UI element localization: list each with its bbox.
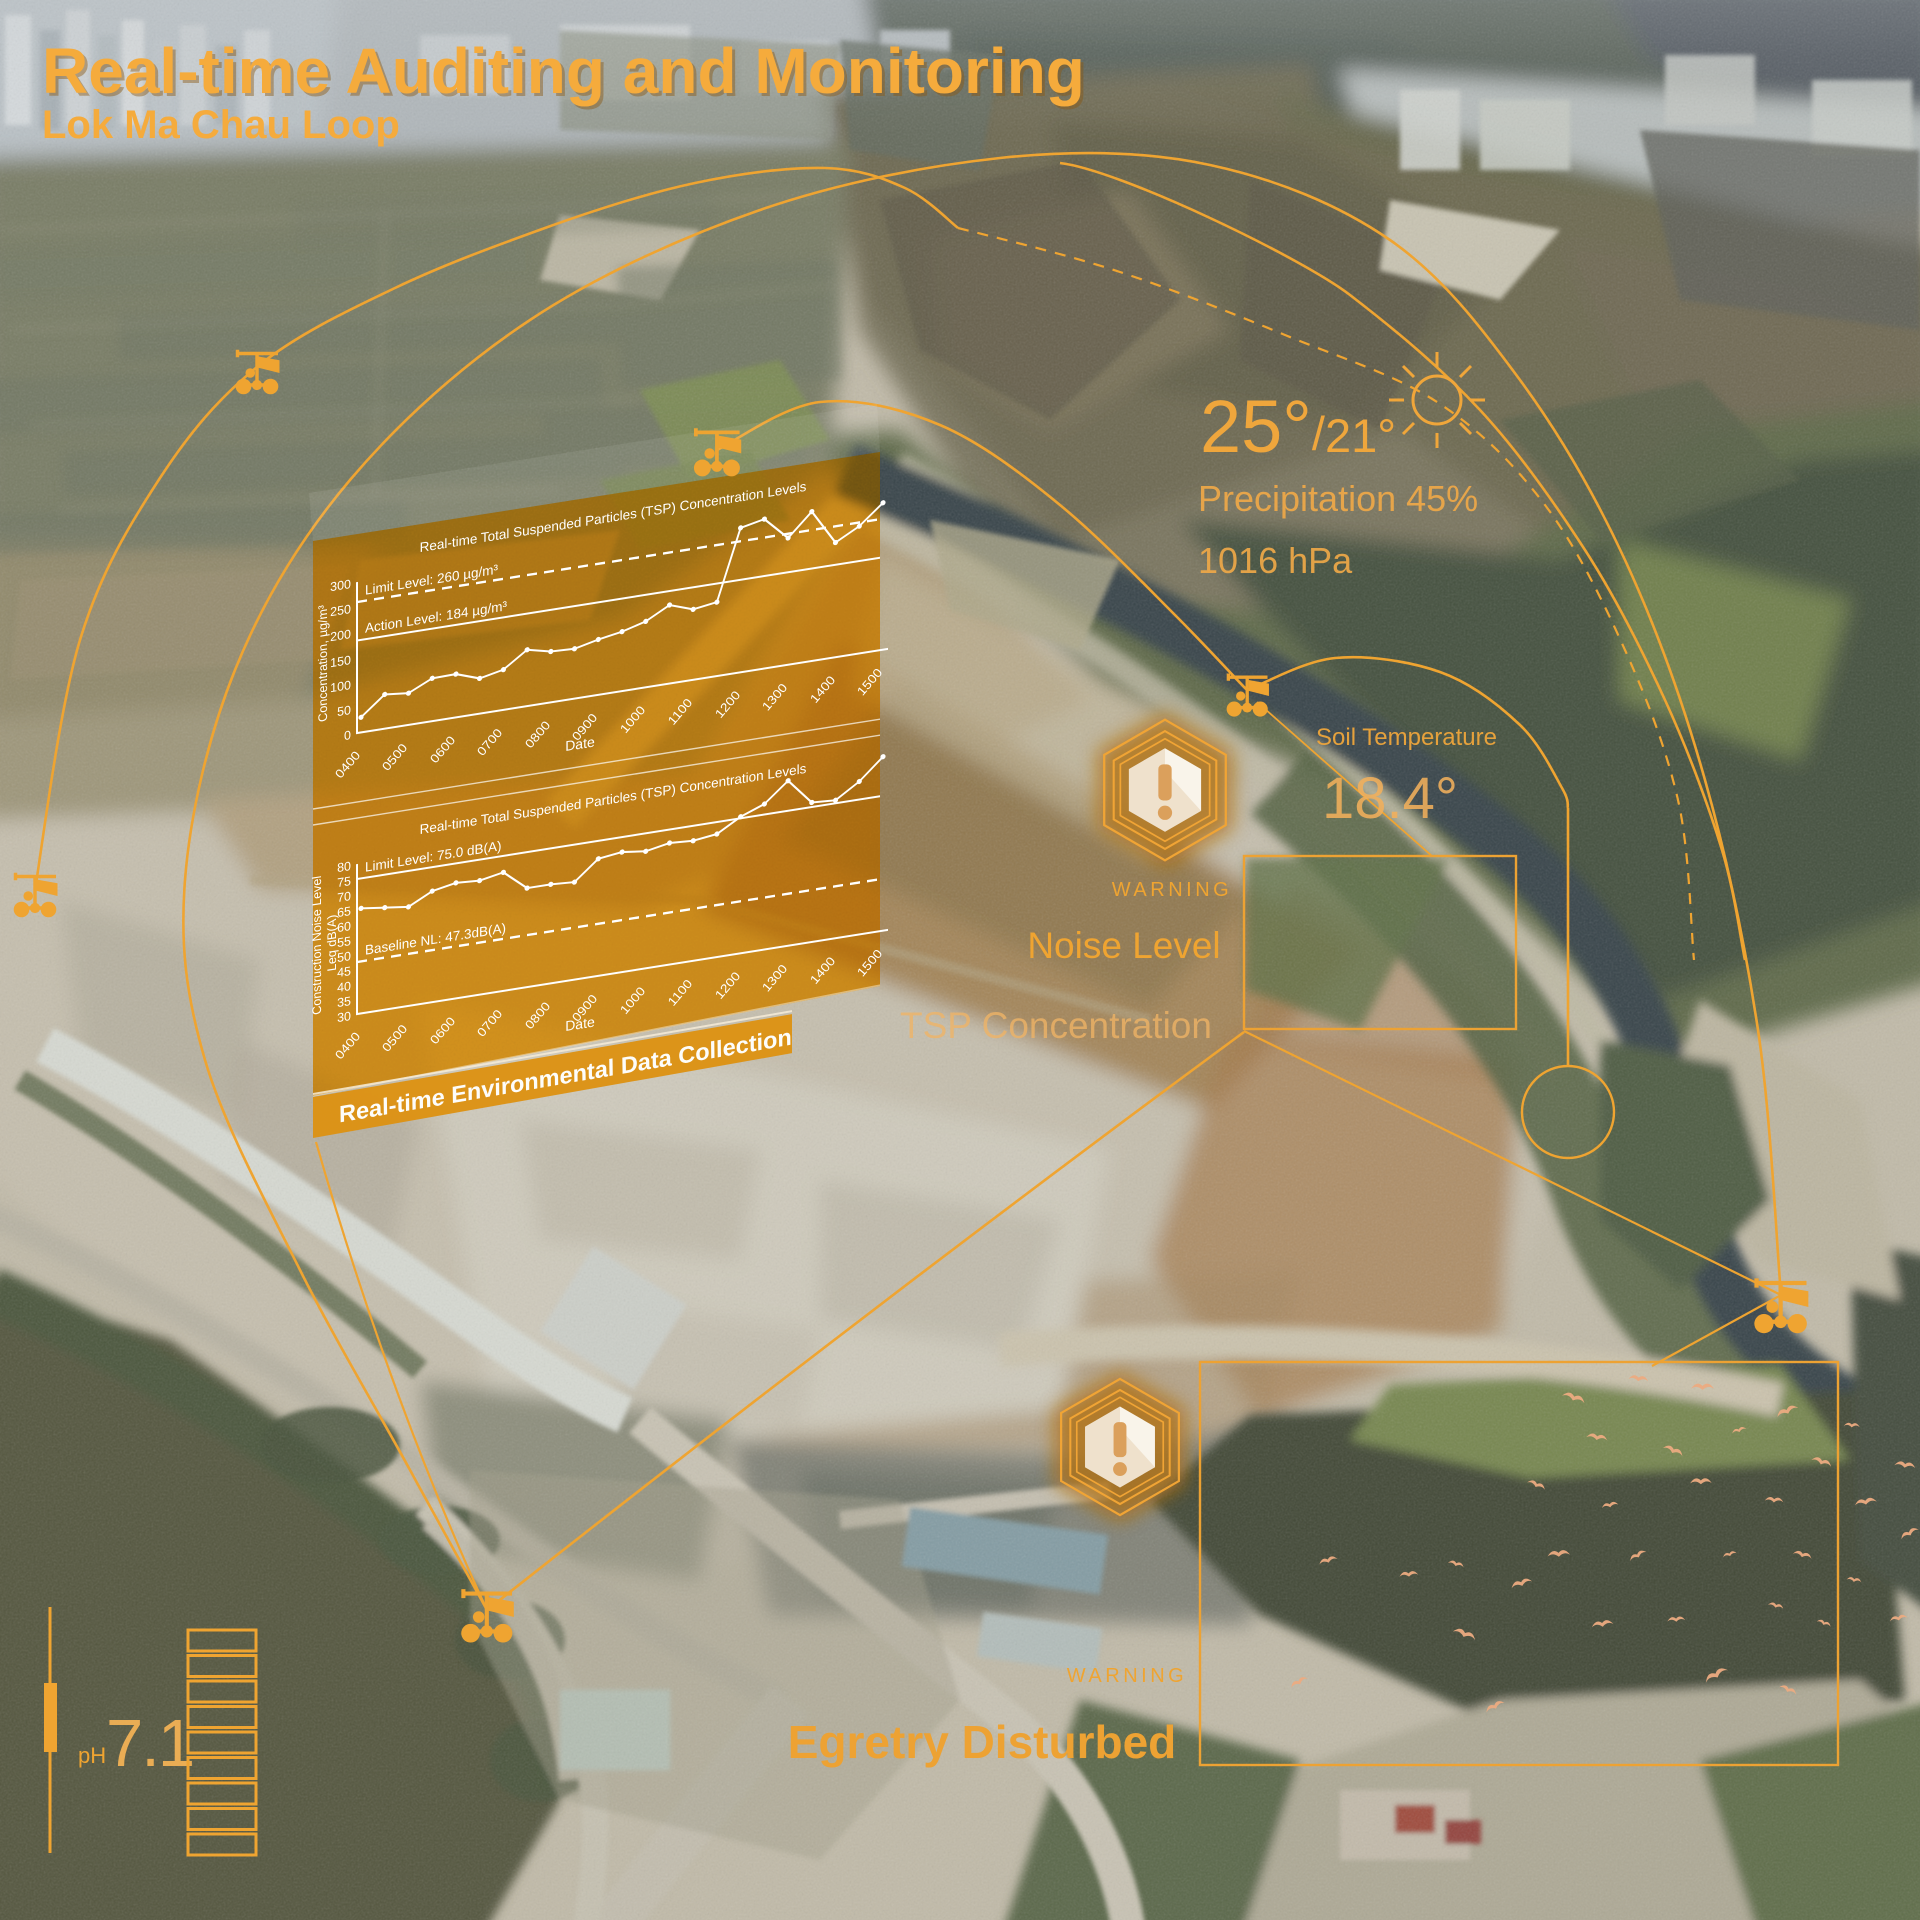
- svg-text:1000: 1000: [617, 703, 648, 736]
- svg-text:45: 45: [337, 964, 351, 980]
- svg-text:1200: 1200: [712, 969, 743, 1002]
- svg-text:7.1: 7.1: [106, 1706, 193, 1781]
- svg-text:Concentration, µg/m³: Concentration, µg/m³: [316, 604, 330, 723]
- svg-text:0500: 0500: [379, 741, 410, 774]
- svg-text:25°/21°: 25°/21°: [1200, 385, 1396, 468]
- svg-text:75: 75: [337, 874, 351, 890]
- svg-text:55: 55: [337, 934, 351, 950]
- svg-text:0500: 0500: [379, 1022, 410, 1055]
- svg-text:pH: pH: [78, 1743, 106, 1768]
- svg-text:Limit Level: 260 µg/m³: Limit Level: 260 µg/m³: [365, 562, 498, 598]
- svg-text:250: 250: [330, 602, 351, 619]
- svg-text:1400: 1400: [807, 673, 838, 706]
- svg-text:TSP Concentration: TSP Concentration: [900, 1005, 1212, 1046]
- svg-text:0600: 0600: [427, 733, 458, 766]
- svg-text:Precipitation 45%: Precipitation 45%: [1198, 478, 1478, 519]
- svg-text:1300: 1300: [759, 962, 790, 995]
- svg-text:100: 100: [330, 678, 351, 695]
- svg-text:0: 0: [344, 728, 351, 743]
- svg-text:1500: 1500: [854, 666, 885, 699]
- svg-text:Date: Date: [565, 1013, 595, 1034]
- svg-text:Real-time Environmental Data C: Real-time Environmental Data Collection: [339, 1025, 792, 1129]
- svg-text:65: 65: [337, 904, 351, 920]
- svg-text:Date: Date: [565, 733, 595, 754]
- svg-text:0800: 0800: [522, 999, 553, 1032]
- svg-text:0400: 0400: [332, 748, 363, 781]
- svg-text:60: 60: [337, 919, 351, 935]
- svg-text:1016 hPa: 1016 hPa: [1198, 540, 1353, 581]
- svg-text:50: 50: [337, 949, 351, 965]
- svg-text:WARNING: WARNING: [1112, 879, 1232, 901]
- svg-text:150: 150: [330, 653, 351, 670]
- svg-text:Construction Noise LevelLeq dB: Construction Noise LevelLeq dB(A): [310, 872, 339, 1015]
- svg-text:Lok Ma Chau Loop: Lok Ma Chau Loop: [42, 103, 400, 147]
- svg-text:0400: 0400: [332, 1029, 363, 1062]
- svg-text:35: 35: [337, 994, 351, 1010]
- svg-text:70: 70: [337, 889, 351, 905]
- svg-text:1100: 1100: [665, 696, 695, 728]
- svg-text:1100: 1100: [665, 977, 695, 1009]
- svg-text:Egretry Disturbed: Egretry Disturbed: [788, 1716, 1177, 1768]
- svg-text:Baseline NL: 47.3dB(A): Baseline NL: 47.3dB(A): [365, 921, 506, 958]
- svg-text:1000: 1000: [617, 984, 648, 1017]
- svg-text:1500: 1500: [854, 947, 885, 980]
- svg-text:50: 50: [337, 703, 351, 719]
- svg-text:40: 40: [337, 979, 351, 995]
- svg-text:Limit Level: 75.0 dB(A): Limit Level: 75.0 dB(A): [365, 838, 502, 875]
- svg-text:WARNING: WARNING: [1067, 1665, 1187, 1687]
- svg-text:0600: 0600: [427, 1014, 458, 1047]
- svg-text:Real-time Auditing and Monitor: Real-time Auditing and Monitoring: [42, 35, 1085, 107]
- svg-text:0700: 0700: [474, 1007, 505, 1040]
- svg-text:1300: 1300: [759, 681, 790, 714]
- svg-text:200: 200: [330, 627, 351, 644]
- svg-text:300: 300: [330, 577, 351, 594]
- svg-text:18.4°: 18.4°: [1322, 766, 1458, 831]
- svg-text:0800: 0800: [522, 718, 553, 751]
- svg-text:Soil Temperature: Soil Temperature: [1316, 724, 1497, 751]
- svg-text:Action Level: 184 µg/m³: Action Level: 184 µg/m³: [365, 598, 508, 635]
- svg-text:Noise Level: Noise Level: [1027, 925, 1220, 966]
- svg-text:30: 30: [337, 1009, 351, 1025]
- svg-text:80: 80: [337, 859, 351, 875]
- svg-text:1400: 1400: [807, 954, 838, 987]
- svg-text:0700: 0700: [474, 726, 505, 759]
- svg-text:1200: 1200: [712, 688, 743, 721]
